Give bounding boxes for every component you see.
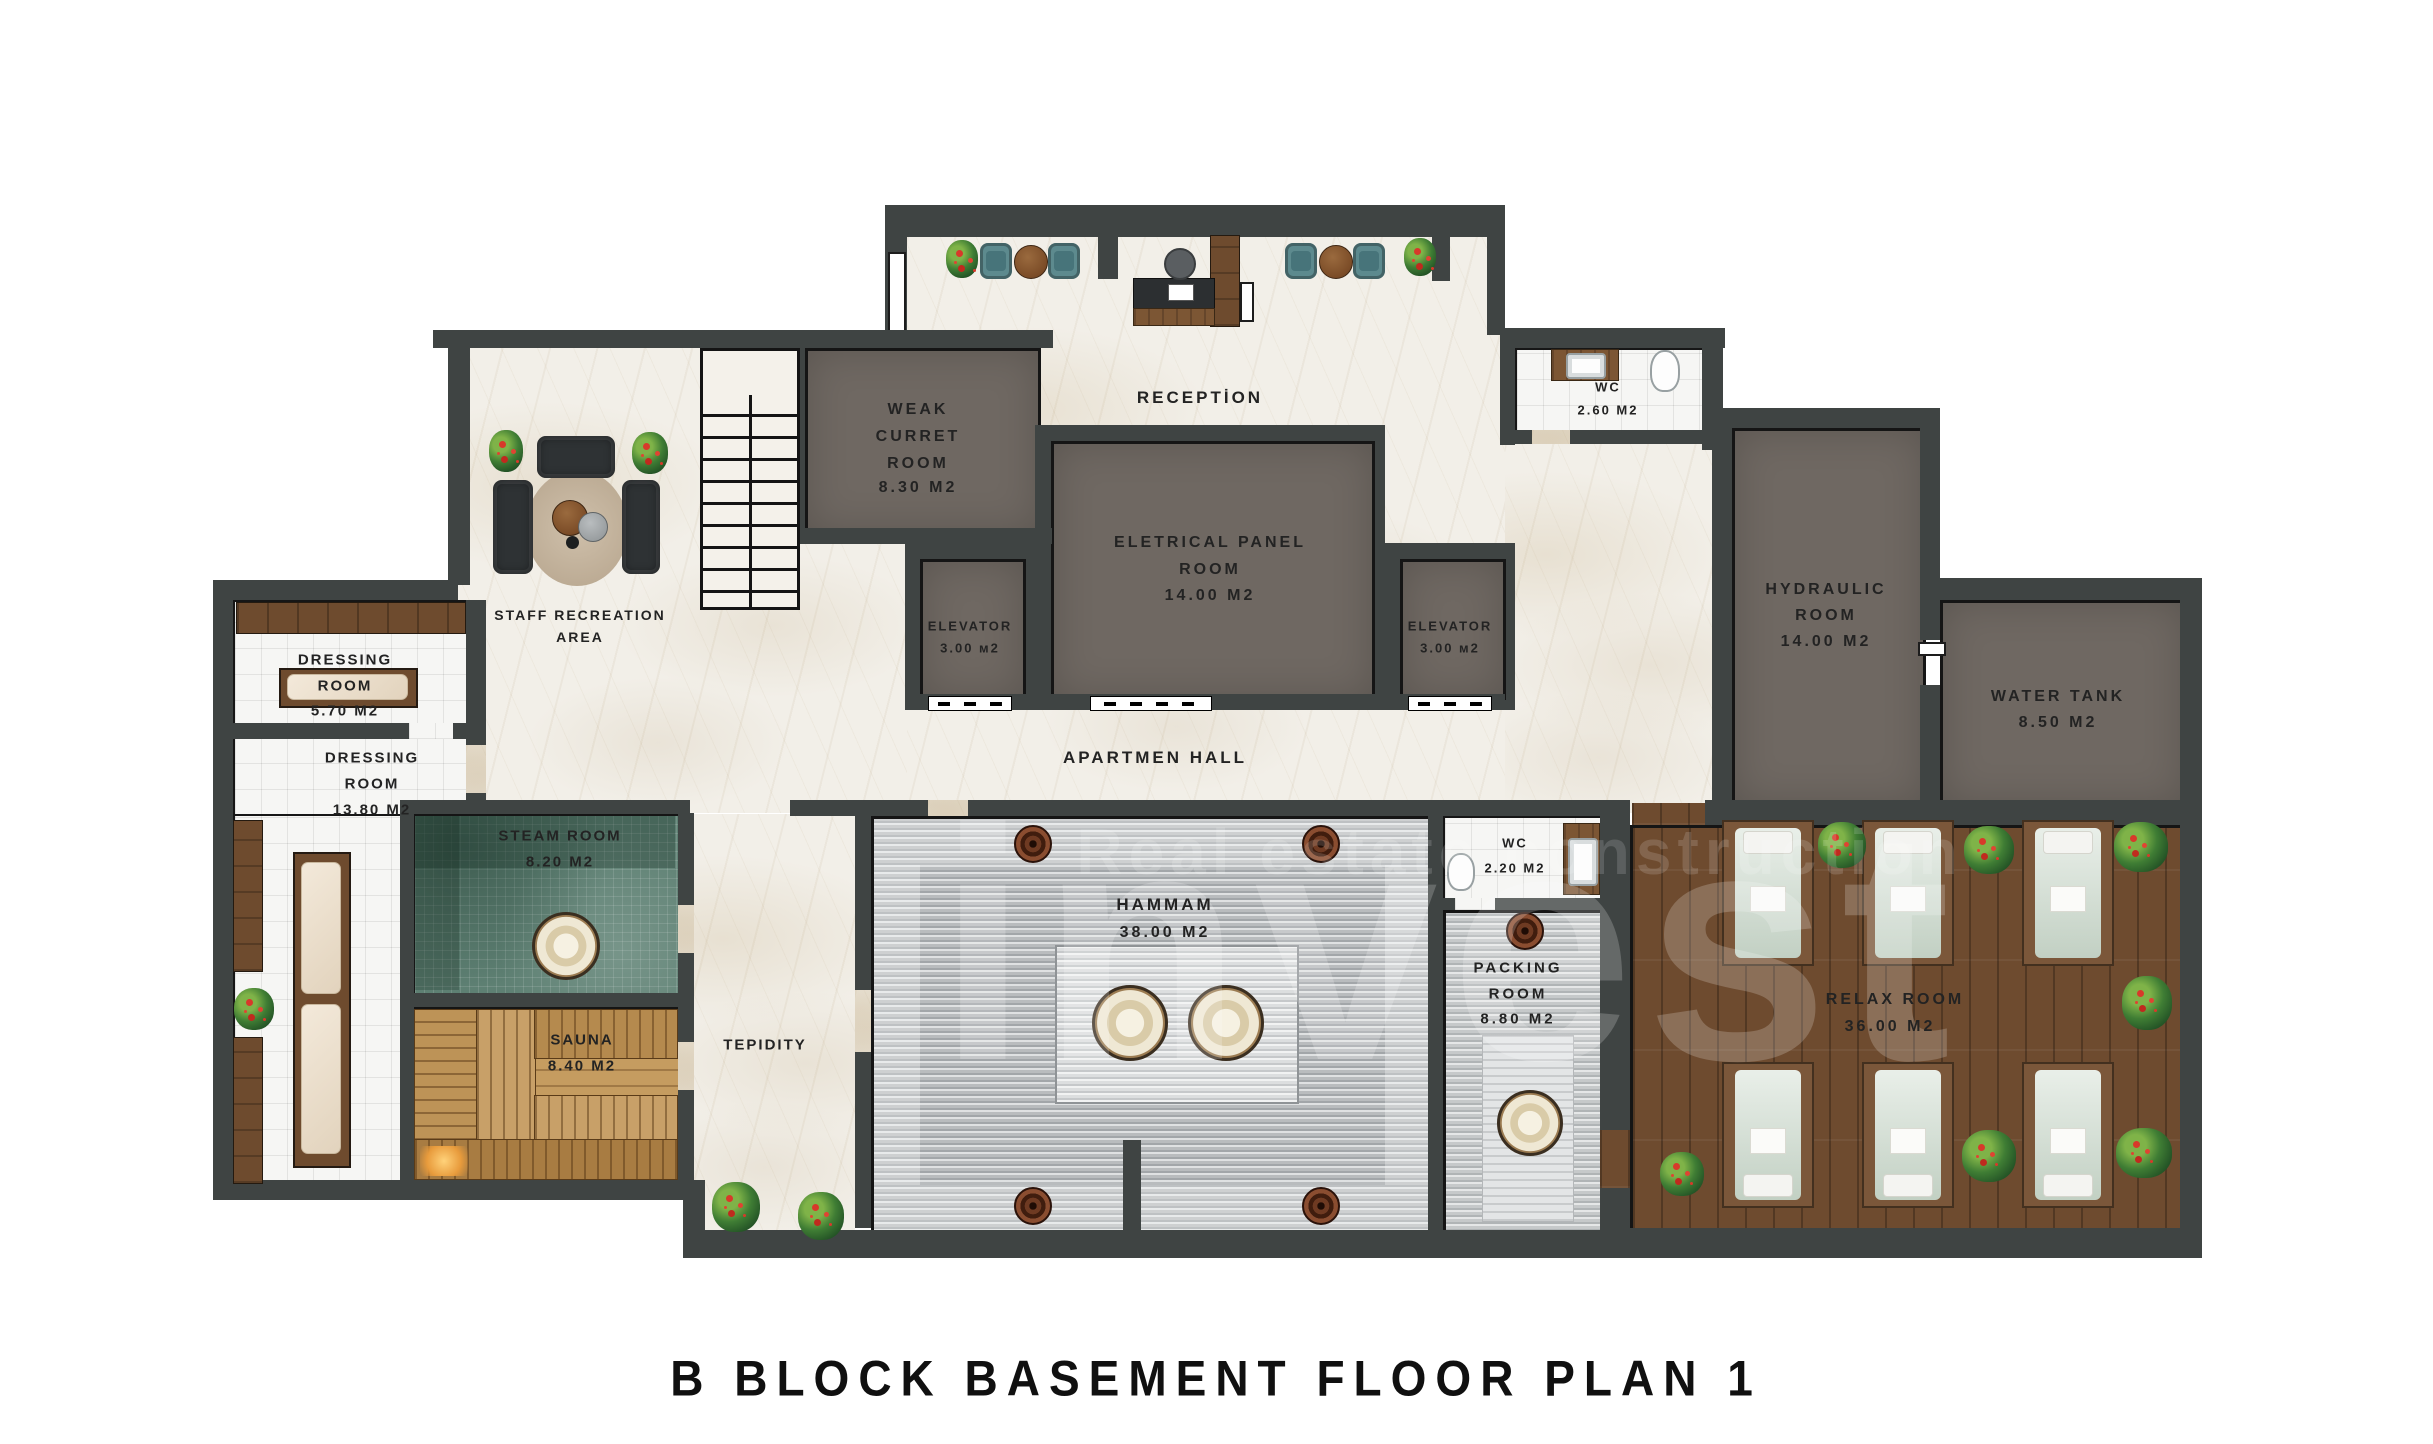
steam-medallion xyxy=(532,912,600,980)
room-area-elevator-right: 3.00 м2 xyxy=(1420,641,1480,656)
relax-bed xyxy=(1722,1062,1814,1208)
hammam-kurna xyxy=(1014,825,1052,863)
door-leaf xyxy=(1240,282,1254,322)
door-opening xyxy=(1600,1130,1630,1188)
room-label-weak-current: CURRET xyxy=(876,428,961,446)
hammam-kurna xyxy=(1302,1187,1340,1225)
wall xyxy=(1428,800,1443,1230)
wardrobe xyxy=(236,602,466,634)
plant xyxy=(2116,1128,2172,1178)
elevator-right-door xyxy=(1408,696,1492,711)
wall xyxy=(678,813,694,1180)
room-label-reception: RECEPTİON xyxy=(1137,388,1263,408)
hammam-kurna xyxy=(1014,1187,1052,1225)
plant xyxy=(2122,976,2172,1030)
wall xyxy=(448,348,470,585)
room-label-electrical: ROOM xyxy=(1179,561,1241,579)
wall-stub xyxy=(1123,1140,1141,1232)
door-opening xyxy=(409,723,453,739)
elevator-left-door xyxy=(928,696,1012,711)
wall xyxy=(790,528,1052,544)
round-table xyxy=(1014,245,1048,279)
packing-kurna xyxy=(1506,912,1544,950)
sink xyxy=(1566,353,1606,379)
room-area-water-tank: 8.50 M2 xyxy=(2019,714,2098,732)
room-label-hydraulic: HYDRAULIC xyxy=(1765,581,1886,599)
plant xyxy=(1818,822,1866,868)
desk-monitor xyxy=(1168,284,1194,301)
room-label-packing: ROOM xyxy=(1489,986,1548,1003)
sofa xyxy=(537,436,615,478)
room-area-packing: 8.80 M2 xyxy=(1480,1011,1555,1028)
armchair xyxy=(1048,243,1080,279)
sauna-bench-mid xyxy=(534,1095,678,1141)
wall-pillar xyxy=(1098,237,1118,279)
wall xyxy=(213,1180,705,1200)
room-label-sauna: SAUNA xyxy=(550,1032,613,1049)
bench-cushion xyxy=(301,862,341,994)
room-area-hydraulic: 14.00 M2 xyxy=(1781,633,1872,651)
room-area-wc-top: 2.60 M2 xyxy=(1578,403,1639,418)
wall xyxy=(1500,328,1725,348)
wall xyxy=(1487,205,1505,335)
sink xyxy=(1568,838,1598,886)
plant xyxy=(1964,826,2014,874)
room-label-weak-current: WEAK xyxy=(888,401,949,419)
door-opening xyxy=(1532,430,1570,444)
locker xyxy=(233,820,263,972)
relax-bed xyxy=(1862,820,1954,966)
room-label-staff: STAFF RECREATION xyxy=(494,607,665,623)
armchair xyxy=(1353,243,1385,279)
room-label-staff: AREA xyxy=(556,629,604,645)
desk-chair xyxy=(1164,248,1196,280)
room-label-relax: RELAX ROOM xyxy=(1826,991,1964,1009)
sauna-bench xyxy=(414,1009,478,1141)
plant xyxy=(632,432,668,474)
door-opening xyxy=(466,745,486,793)
plant xyxy=(234,988,274,1030)
wall xyxy=(433,330,1053,348)
relax-bed xyxy=(1722,820,1814,966)
wall xyxy=(1920,578,2202,600)
room-label-dressing-small: DRESSING xyxy=(298,652,392,669)
plant xyxy=(712,1182,760,1232)
floor-plan-canvas: invest Real estate construction RECEPTİO… xyxy=(0,0,2433,1444)
room-area-electrical: 14.00 M2 xyxy=(1165,587,1256,605)
armchair xyxy=(1285,243,1317,279)
packing-medallion xyxy=(1497,1090,1563,1156)
hammam-kurna xyxy=(1302,825,1340,863)
stair-divider xyxy=(749,395,752,607)
staircase xyxy=(700,348,800,610)
door-opening xyxy=(1455,898,1495,910)
wall xyxy=(1920,408,1940,640)
tepidity-floor xyxy=(690,814,855,1230)
electrical-room-door xyxy=(1090,696,1212,711)
plant xyxy=(946,240,978,278)
room-label-hall: APARTMEN HALL xyxy=(1063,748,1247,768)
relax-bed xyxy=(2022,1062,2114,1208)
plant xyxy=(798,1192,844,1240)
sofa xyxy=(622,480,660,574)
hammam-door-opening xyxy=(928,800,968,816)
plant xyxy=(1404,238,1436,276)
sauna-door-opening xyxy=(678,1042,694,1090)
plant xyxy=(489,430,523,472)
plant xyxy=(1660,1152,1704,1196)
room-label-weak-current: ROOM xyxy=(887,455,949,473)
room-label-dressing-large: ROOM xyxy=(345,776,400,793)
door-leaf xyxy=(888,252,906,332)
side-table-small xyxy=(566,536,579,549)
armchair xyxy=(980,243,1012,279)
hammam-side-opening xyxy=(855,990,871,1052)
sauna-stove-glow xyxy=(420,1146,468,1176)
room-area-dressing-small: 5.70 M2 xyxy=(311,703,379,720)
round-table xyxy=(1319,245,1353,279)
room-label-elevator-right: ELEVATOR xyxy=(1408,619,1493,634)
wall xyxy=(968,800,1630,816)
room-label-electrical: ELETRICAL PANEL xyxy=(1114,534,1306,552)
room-label-wc-spa: WC xyxy=(1502,836,1528,851)
reception-desk-front xyxy=(1133,308,1215,326)
plan-title: B BLOCK BASEMENT FLOOR PLAN 1 xyxy=(670,1349,1762,1407)
wall xyxy=(1712,408,1940,428)
door-leaf xyxy=(1918,642,1946,656)
wall xyxy=(213,580,458,600)
wall xyxy=(1712,408,1732,813)
hammam-medallion xyxy=(1188,985,1264,1061)
wall xyxy=(412,993,678,1007)
room-label-dressing-large: DRESSING xyxy=(325,750,419,767)
wall xyxy=(213,580,233,1198)
relax-bed xyxy=(1862,1062,1954,1208)
toilet xyxy=(1650,350,1680,392)
hammam-medallion xyxy=(1092,985,1168,1061)
room-label-water-tank: WATER TANK xyxy=(1991,688,2125,706)
steam-door-opening xyxy=(678,905,694,953)
room-label-steam: STEAM ROOM xyxy=(498,828,621,845)
room-area-dressing-large: 13.80 M2 xyxy=(333,802,412,819)
plant xyxy=(1962,1130,2016,1182)
room-label-dressing-small: ROOM xyxy=(318,678,373,695)
room-area-elevator-left: 3.00 м2 xyxy=(940,641,1000,656)
right-corridor-floor xyxy=(1505,444,1712,813)
room-area-steam: 8.20 M2 xyxy=(526,854,594,871)
room-area-relax: 36.00 M2 xyxy=(1845,1018,1936,1036)
room-label-tepidity: TEPIDITY xyxy=(723,1037,807,1054)
steam-bench-shadow xyxy=(415,816,459,990)
relax-bed xyxy=(2022,820,2114,966)
wall xyxy=(400,800,414,1180)
room-area-sauna: 8.40 M2 xyxy=(548,1058,616,1075)
plant xyxy=(2114,822,2168,872)
wall xyxy=(2180,578,2202,1258)
bench-cushion xyxy=(301,1004,341,1154)
coffee-table-grey xyxy=(578,512,608,542)
wall xyxy=(885,205,1505,237)
room-label-wc-top: WC xyxy=(1595,380,1621,395)
room-label-elevator-left: ELEVATOR xyxy=(928,619,1013,634)
locker xyxy=(233,1037,263,1184)
room-area-hammam: 38.00 M2 xyxy=(1120,924,1211,942)
room-label-packing: PACKING xyxy=(1473,960,1562,977)
sauna-bench xyxy=(476,1009,536,1141)
room-label-hydraulic: ROOM xyxy=(1795,607,1857,625)
toilet xyxy=(1447,853,1475,891)
room-area-wc-spa: 2.20 M2 xyxy=(1485,861,1546,876)
wall xyxy=(1612,1228,2202,1258)
wall xyxy=(400,800,690,814)
room-label-hammam: HAMMAM xyxy=(1116,895,1213,915)
relax-entry-opening xyxy=(1632,803,1705,825)
sofa xyxy=(493,480,533,574)
wall xyxy=(1920,685,1940,800)
room-area-weak-current: 8.30 M2 xyxy=(879,479,958,497)
